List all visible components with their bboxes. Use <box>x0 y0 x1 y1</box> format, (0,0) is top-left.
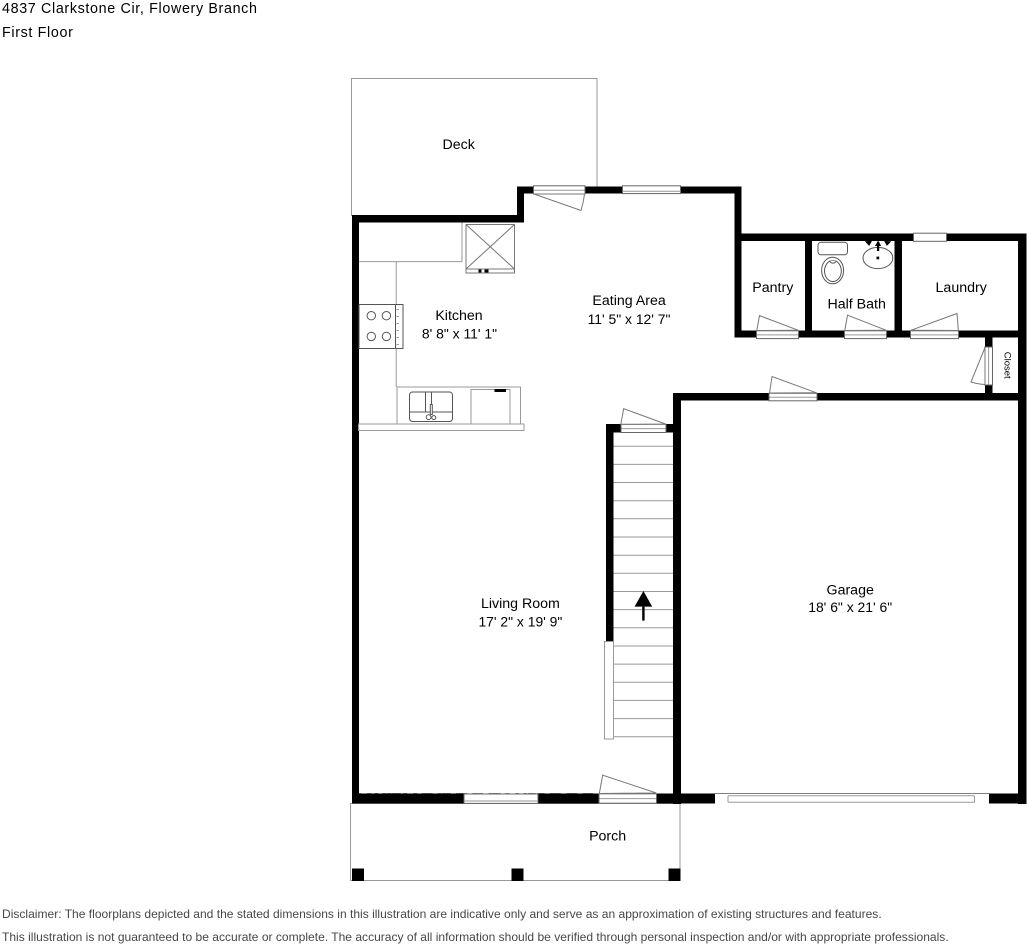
svg-text:Pantry: Pantry <box>752 280 794 296</box>
svg-text:Garage: Garage <box>827 583 874 599</box>
svg-text:18' 6" x 21' 6": 18' 6" x 21' 6" <box>808 599 892 615</box>
svg-text:Half Bath: Half Bath <box>828 297 886 313</box>
svg-text:Porch: Porch <box>589 829 626 845</box>
svg-text:This illustration is not guara: This illustration is not guaranteed to b… <box>2 930 949 944</box>
svg-text:11' 5" x 12' 7": 11' 5" x 12' 7" <box>588 311 671 327</box>
svg-text:Closet: Closet <box>1002 352 1013 379</box>
svg-text:Eating Area: Eating Area <box>592 293 665 309</box>
svg-text:4837 Clarkstone Cir, Flowery B: 4837 Clarkstone Cir, Flowery Branch <box>2 1 258 17</box>
svg-text:Laundry: Laundry <box>936 280 988 296</box>
svg-text:Deck: Deck <box>443 137 476 153</box>
svg-text:First Floor: First Floor <box>2 25 74 41</box>
svg-text:8' 8" x 11' 1": 8' 8" x 11' 1" <box>422 326 497 342</box>
svg-text:17' 2" x 19' 9": 17' 2" x 19' 9" <box>478 613 562 629</box>
svg-text:Kitchen: Kitchen <box>435 308 482 324</box>
svg-text:Living Room: Living Room <box>481 596 560 612</box>
svg-text:Disclaimer: The floorplans dep: Disclaimer: The floorplans depicted and … <box>2 907 882 921</box>
